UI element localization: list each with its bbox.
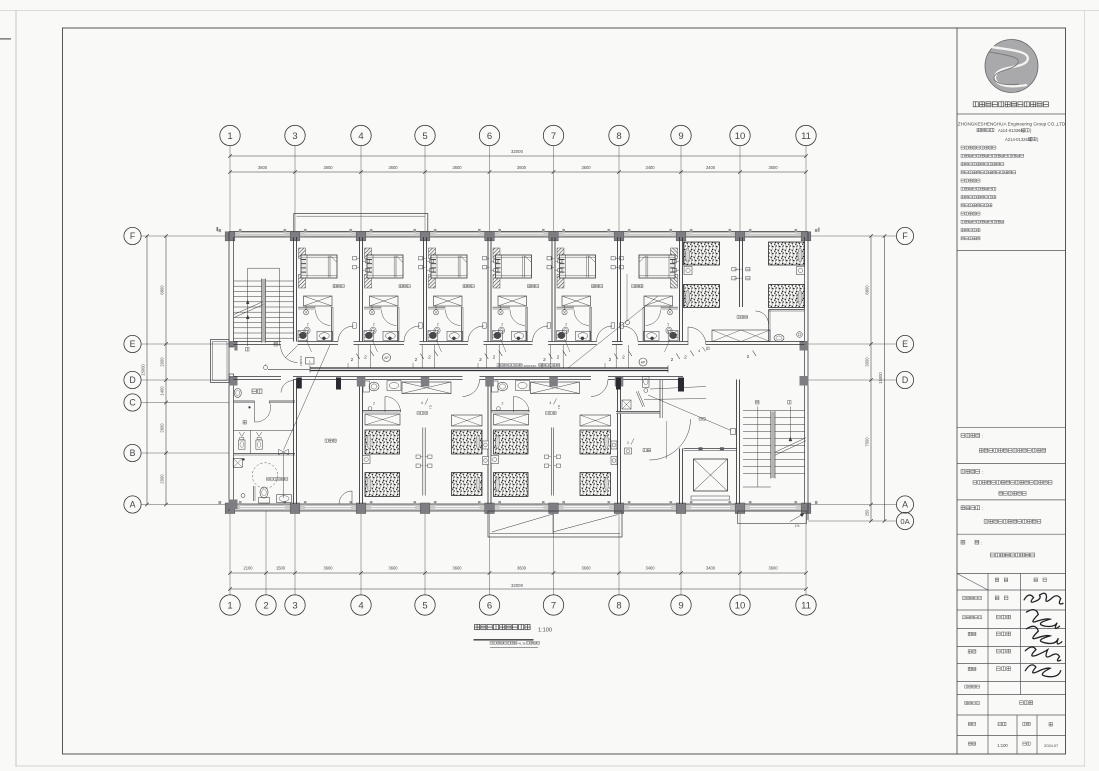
- svg-text:3600: 3600: [258, 165, 268, 170]
- svg-text:3600: 3600: [323, 566, 333, 571]
- svg-text:A: A: [902, 500, 908, 510]
- svg-text:15000: 15000: [140, 364, 145, 376]
- svg-text:1400: 1400: [160, 386, 165, 396]
- svg-text:2000: 2000: [160, 357, 165, 367]
- svg-text:2: 2: [373, 323, 375, 327]
- svg-text:8: 8: [616, 601, 621, 612]
- svg-text:AP: AP: [641, 361, 646, 365]
- svg-text:2: 2: [667, 323, 669, 327]
- svg-text:3600: 3600: [768, 165, 778, 170]
- svg-text:2: 2: [684, 355, 687, 361]
- svg-text:3600: 3600: [517, 165, 527, 170]
- svg-text:3600: 3600: [768, 566, 778, 571]
- svg-text:7000: 7000: [864, 437, 869, 447]
- svg-text:2: 2: [351, 357, 354, 363]
- svg-text:2: 2: [307, 323, 309, 327]
- svg-text:4: 4: [358, 131, 363, 142]
- svg-text:2: 2: [543, 357, 546, 363]
- svg-text:2: 2: [627, 441, 629, 445]
- svg-text:2100: 2100: [243, 566, 253, 571]
- svg-text:F: F: [902, 231, 908, 241]
- svg-text:2: 2: [373, 402, 375, 406]
- svg-text:4: 4: [421, 401, 423, 405]
- svg-text:4: 4: [698, 349, 700, 353]
- svg-text:4: 4: [358, 601, 363, 612]
- svg-text:32000: 32000: [511, 583, 524, 588]
- svg-text:3600: 3600: [581, 566, 591, 571]
- svg-text:2: 2: [493, 355, 496, 361]
- svg-text:2: 2: [557, 355, 560, 361]
- svg-text:15000: 15000: [878, 372, 883, 384]
- svg-text:1%: 1%: [795, 524, 800, 528]
- svg-text:B: B: [130, 448, 136, 458]
- svg-text:E: E: [902, 339, 908, 349]
- svg-text:A: A: [130, 500, 136, 510]
- svg-text:A214-013263(: A214-013263(: [1005, 137, 1032, 142]
- svg-text:2: 2: [437, 323, 439, 327]
- svg-text:3400: 3400: [706, 566, 716, 571]
- svg-text:2: 2: [364, 355, 367, 361]
- svg-text:3600: 3600: [517, 566, 527, 571]
- svg-text:1:100: 1:100: [538, 628, 552, 634]
- svg-text:E: E: [130, 339, 136, 349]
- svg-text:41.36: 41.36: [518, 642, 526, 646]
- svg-text:1500: 1500: [276, 566, 286, 571]
- svg-text:0A: 0A: [900, 517, 910, 526]
- svg-text:3600: 3600: [452, 165, 462, 170]
- svg-text:AP: AP: [384, 356, 389, 360]
- svg-text:3600: 3600: [452, 566, 462, 571]
- svg-text:250: 250: [864, 509, 869, 517]
- svg-text:2: 2: [671, 357, 674, 363]
- svg-text:C: C: [129, 398, 136, 408]
- svg-text:6800: 6800: [160, 285, 165, 295]
- svg-text:2024.07: 2024.07: [1044, 743, 1058, 748]
- svg-text:3600: 3600: [323, 165, 333, 170]
- svg-text:6800: 6800: [864, 285, 869, 295]
- svg-text:3400: 3400: [645, 165, 655, 170]
- svg-text:6: 6: [487, 131, 492, 142]
- svg-text::: :: [982, 470, 983, 475]
- svg-text:2: 2: [428, 355, 431, 361]
- svg-text:2: 2: [263, 601, 268, 612]
- svg-text:D: D: [902, 375, 908, 385]
- svg-text:2: 2: [501, 323, 503, 327]
- svg-text:3600: 3600: [388, 566, 398, 571]
- svg-text:ZHONGKESHENGHUA Engineering Gr: ZHONGKESHENGHUA Engineering Group CO.,LT…: [958, 122, 1066, 127]
- svg-text:3600: 3600: [388, 165, 398, 170]
- svg-text:9: 9: [678, 601, 683, 612]
- svg-text:7: 7: [551, 131, 556, 142]
- svg-text:3000: 3000: [864, 357, 869, 367]
- svg-text:3: 3: [292, 601, 297, 612]
- svg-text:F: F: [130, 231, 136, 241]
- svg-text:9: 9: [678, 131, 683, 142]
- svg-text:2: 2: [609, 357, 612, 363]
- svg-text:A114-013266(: A114-013266(: [998, 128, 1025, 133]
- svg-text:1: 1: [227, 601, 232, 612]
- svg-text:10: 10: [735, 131, 746, 142]
- svg-text:200X100-: 200X100-: [524, 364, 537, 368]
- svg-text:3: 3: [292, 131, 297, 142]
- svg-text:6: 6: [487, 601, 492, 612]
- svg-text:FM2531: FM2531: [299, 355, 303, 366]
- svg-text:2: 2: [747, 354, 750, 360]
- svg-text:4: 4: [550, 401, 552, 405]
- svg-text::: :: [981, 541, 982, 546]
- svg-text:5: 5: [422, 131, 427, 142]
- svg-text:2000: 2000: [160, 474, 165, 484]
- svg-text:3600: 3600: [581, 165, 591, 170]
- svg-text:D: D: [129, 375, 135, 385]
- svg-text:32000: 32000: [511, 149, 524, 154]
- svg-text:10: 10: [735, 601, 746, 612]
- svg-text:3400: 3400: [645, 566, 655, 571]
- svg-text:2600: 2600: [160, 423, 165, 433]
- svg-text::: :: [982, 434, 983, 439]
- svg-text:1:100: 1:100: [997, 743, 1008, 748]
- svg-text:11: 11: [801, 131, 811, 142]
- svg-text:3400: 3400: [706, 165, 716, 170]
- svg-text:5: 5: [422, 601, 427, 612]
- svg-text:8: 8: [616, 131, 621, 142]
- svg-text:7: 7: [551, 601, 556, 612]
- svg-text:11: 11: [801, 601, 811, 612]
- svg-text:2: 2: [565, 323, 567, 327]
- svg-text:2: 2: [479, 357, 482, 363]
- svg-text::: :: [982, 506, 983, 511]
- svg-text:2: 2: [502, 402, 504, 406]
- svg-text:2: 2: [415, 357, 418, 363]
- svg-text:1: 1: [227, 131, 232, 142]
- svg-text:2: 2: [622, 355, 625, 361]
